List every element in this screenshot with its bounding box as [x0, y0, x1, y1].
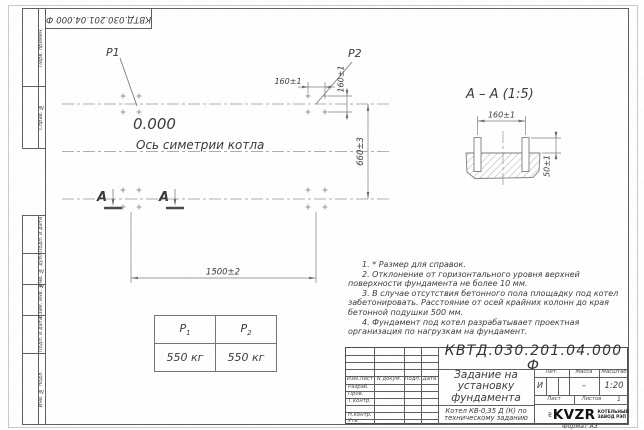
note-3: 3. В случае отсутствия бетонного пола пл…	[348, 289, 630, 318]
dim-160y-label: 160±1	[337, 65, 346, 92]
sheets-label: Листов	[574, 395, 609, 404]
scale-value: 1:20	[599, 377, 629, 395]
dim-1500-label: 1500±2	[206, 268, 240, 278]
section-letter-right: А	[158, 190, 169, 205]
row-utv: Утв.	[347, 419, 375, 425]
dim-160x-label: 160±1	[274, 77, 301, 86]
mass-label: Масса	[569, 369, 599, 377]
drawing-sheet: КВТД.030.201.04.000 Ф Перв. примен. Спра…	[0, 0, 644, 430]
p2-leader-line	[316, 62, 352, 104]
load-p2-value: 550 кг	[216, 344, 277, 372]
sheet-label: Лист	[534, 395, 574, 404]
title-block: КВТД.030.201.04.000 Ф Задание на установ…	[345, 347, 628, 424]
note-1: 1. * Размер для справок.	[348, 260, 630, 270]
load-table: P1 P2 550 кг 550 кг	[154, 315, 277, 372]
load-p1-value: 550 кг	[155, 344, 216, 372]
load-table-value-row: 550 кг 550 кг	[155, 344, 277, 372]
kvzr-logo-icon	[548, 406, 552, 423]
drawing-title: Задание на установку фундамента	[438, 369, 534, 405]
row-prov: Пров.	[347, 391, 375, 398]
title-block-doc-number: КВТД.030.201.04.000 Ф	[438, 348, 629, 369]
col-header-n-dokum: N докум.	[374, 376, 404, 384]
drawing-description: Котел КВ-0,35 Д (К) по техническому зада…	[438, 405, 534, 425]
col-header-podp: Подп.	[404, 376, 421, 384]
row-blank	[347, 405, 375, 412]
section-title: А – А (1:5)	[465, 87, 534, 102]
anchor-stud-right	[522, 138, 529, 172]
load-table-header-p2: P2	[216, 316, 277, 344]
dim-160x-extensions	[308, 82, 325, 93]
section-dim-50-extensions	[531, 138, 561, 153]
note-4: 4. Фундамент под котел разрабатывает про…	[348, 318, 630, 337]
section-dim-160-label: 160±1	[488, 111, 515, 120]
lit-label: Лит.	[534, 369, 569, 377]
section-dim-50-label: 50±1	[543, 155, 552, 177]
logo-text: KVZR	[553, 407, 596, 423]
col-header-data: Дата	[421, 376, 438, 384]
scale-label: Масштаб	[599, 369, 629, 377]
format-label: Формат А3	[545, 424, 615, 430]
logo-caption: КОТЕЛЬНЫЙ ЗАВОД РЭП	[597, 410, 629, 420]
mass-value: –	[569, 377, 599, 395]
lit-value: И	[534, 377, 546, 395]
p1-leader-line	[120, 58, 137, 106]
col-header-izm-list: Изм.Лист	[346, 376, 374, 384]
axis-label: Ось симетрии котла	[136, 138, 264, 152]
row-tkontr: Т.контр.	[347, 398, 375, 405]
section-letter-left: А	[96, 190, 107, 205]
note-2: 2. Отклонение от горизонтального уровня …	[348, 270, 630, 289]
row-razrab: Разраб.	[347, 384, 375, 391]
notes-block: 1. * Размер для справок. 2. Отклонение о…	[348, 260, 630, 337]
sheets-value: 1	[609, 395, 629, 404]
dim-660-label: 660±3	[356, 137, 366, 166]
anchor-stud-left	[474, 138, 481, 172]
p1-label: P1	[106, 46, 120, 59]
load-table-header-p1: P1	[155, 316, 216, 344]
logo-area: KVZR КОТЕЛЬНЫЙ ЗАВОД РЭП	[534, 404, 629, 425]
p2-label: P2	[348, 47, 362, 60]
load-table-header-row: P1 P2	[155, 316, 277, 344]
elevation-label: 0.000	[133, 115, 176, 133]
